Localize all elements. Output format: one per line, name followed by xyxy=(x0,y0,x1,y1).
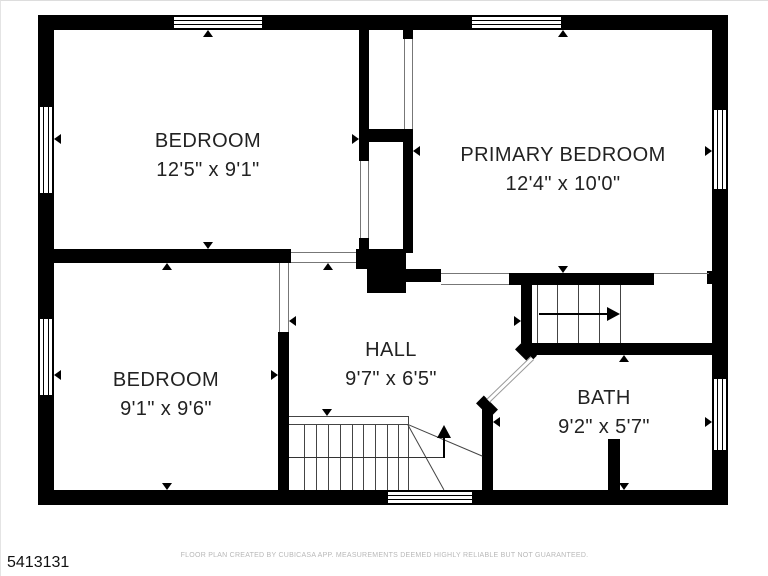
chimney-block xyxy=(356,249,406,269)
room-label-bath: BATH 9'2" x 5'7" xyxy=(558,384,650,442)
dimension-marker-icon xyxy=(413,146,420,156)
closet-opening xyxy=(412,39,413,129)
stair-tread xyxy=(620,285,621,343)
stair-edge-line xyxy=(289,424,408,425)
dimension-marker-icon xyxy=(203,242,213,249)
stairs-up-arrow-icon xyxy=(443,438,445,458)
window xyxy=(38,317,54,397)
interior-wall xyxy=(406,269,441,282)
window xyxy=(470,15,563,30)
disclaimer-text: FLOOR PLAN CREATED BY CUBICASA APP. MEAS… xyxy=(181,552,589,559)
dimension-marker-icon xyxy=(271,370,278,380)
room-dimensions: 9'7" x 6'5" xyxy=(345,365,437,394)
room-label-primary-bedroom: PRIMARY BEDROOM 12'4" x 10'0" xyxy=(460,141,665,199)
window xyxy=(172,15,264,30)
room-label-bedroom-2: BEDROOM 9'1" x 9'6" xyxy=(113,366,219,424)
door-opening xyxy=(279,263,280,332)
dimension-marker-icon xyxy=(322,409,332,416)
closet-opening xyxy=(360,161,361,238)
stairs-direction-arrow-icon xyxy=(539,313,609,315)
room-name: BEDROOM xyxy=(155,127,261,156)
stairs-direction-arrowhead-icon xyxy=(607,307,620,321)
stair-railing-line xyxy=(654,273,709,274)
dimension-marker-icon xyxy=(705,146,712,156)
plan-id: 5413131 xyxy=(7,554,69,572)
stair-edge-line xyxy=(289,416,408,417)
dimension-marker-icon xyxy=(162,263,172,270)
interior-wall xyxy=(403,129,413,253)
dimension-marker-icon xyxy=(203,30,213,37)
room-name: BEDROOM xyxy=(113,366,219,395)
chimney-block xyxy=(367,267,406,293)
interior-wall xyxy=(482,405,493,490)
window xyxy=(712,108,728,191)
dimension-marker-icon xyxy=(705,417,712,427)
dimension-marker-icon xyxy=(323,263,333,270)
closet-opening xyxy=(404,39,405,129)
dimension-marker-icon xyxy=(289,316,296,326)
room-dimensions: 12'4" x 10'0" xyxy=(460,170,665,199)
dimension-marker-icon xyxy=(352,134,359,144)
room-dimensions: 12'5" x 9'1" xyxy=(155,156,261,185)
interior-wall xyxy=(403,30,413,39)
dimension-marker-icon xyxy=(558,266,568,273)
dimension-marker-icon xyxy=(619,355,629,362)
floor-plan: BEDROOM 12'5" x 9'1" PRIMARY BEDROOM 12'… xyxy=(0,0,768,576)
room-label-bedroom-1: BEDROOM 12'5" x 9'1" xyxy=(155,127,261,185)
door-opening xyxy=(441,284,509,285)
door-opening xyxy=(291,252,356,253)
closet-opening xyxy=(368,161,369,238)
room-name: HALL xyxy=(345,336,437,365)
dimension-marker-icon xyxy=(54,134,61,144)
interior-wall xyxy=(523,343,715,355)
stair-tread xyxy=(537,285,538,343)
dimension-marker-icon xyxy=(162,483,172,490)
dimension-marker-icon xyxy=(619,483,629,490)
door-opening xyxy=(441,273,509,274)
exterior-wall-top xyxy=(38,15,728,30)
room-name: PRIMARY BEDROOM xyxy=(460,141,665,170)
window xyxy=(38,105,54,195)
interior-wall xyxy=(278,332,289,490)
room-dimensions: 9'1" x 9'6" xyxy=(113,395,219,424)
dimension-marker-icon xyxy=(558,30,568,37)
dimension-marker-icon xyxy=(493,417,500,427)
stairs-up-arrow-icon xyxy=(289,457,444,458)
exterior-wall-bottom xyxy=(38,490,728,505)
dimension-marker-icon xyxy=(54,370,61,380)
door-leaf xyxy=(487,356,534,402)
window xyxy=(386,490,474,505)
room-name: BATH xyxy=(558,384,650,413)
dimension-marker-icon xyxy=(514,316,521,326)
room-label-hall: HALL 9'7" x 6'5" xyxy=(345,336,437,394)
room-dimensions: 9'2" x 5'7" xyxy=(558,413,650,442)
stairs-up-arrowhead-icon xyxy=(437,425,451,438)
exterior-wall-left xyxy=(38,15,54,505)
interior-wall xyxy=(54,249,291,263)
window xyxy=(712,377,728,452)
interior-wall xyxy=(521,283,532,343)
